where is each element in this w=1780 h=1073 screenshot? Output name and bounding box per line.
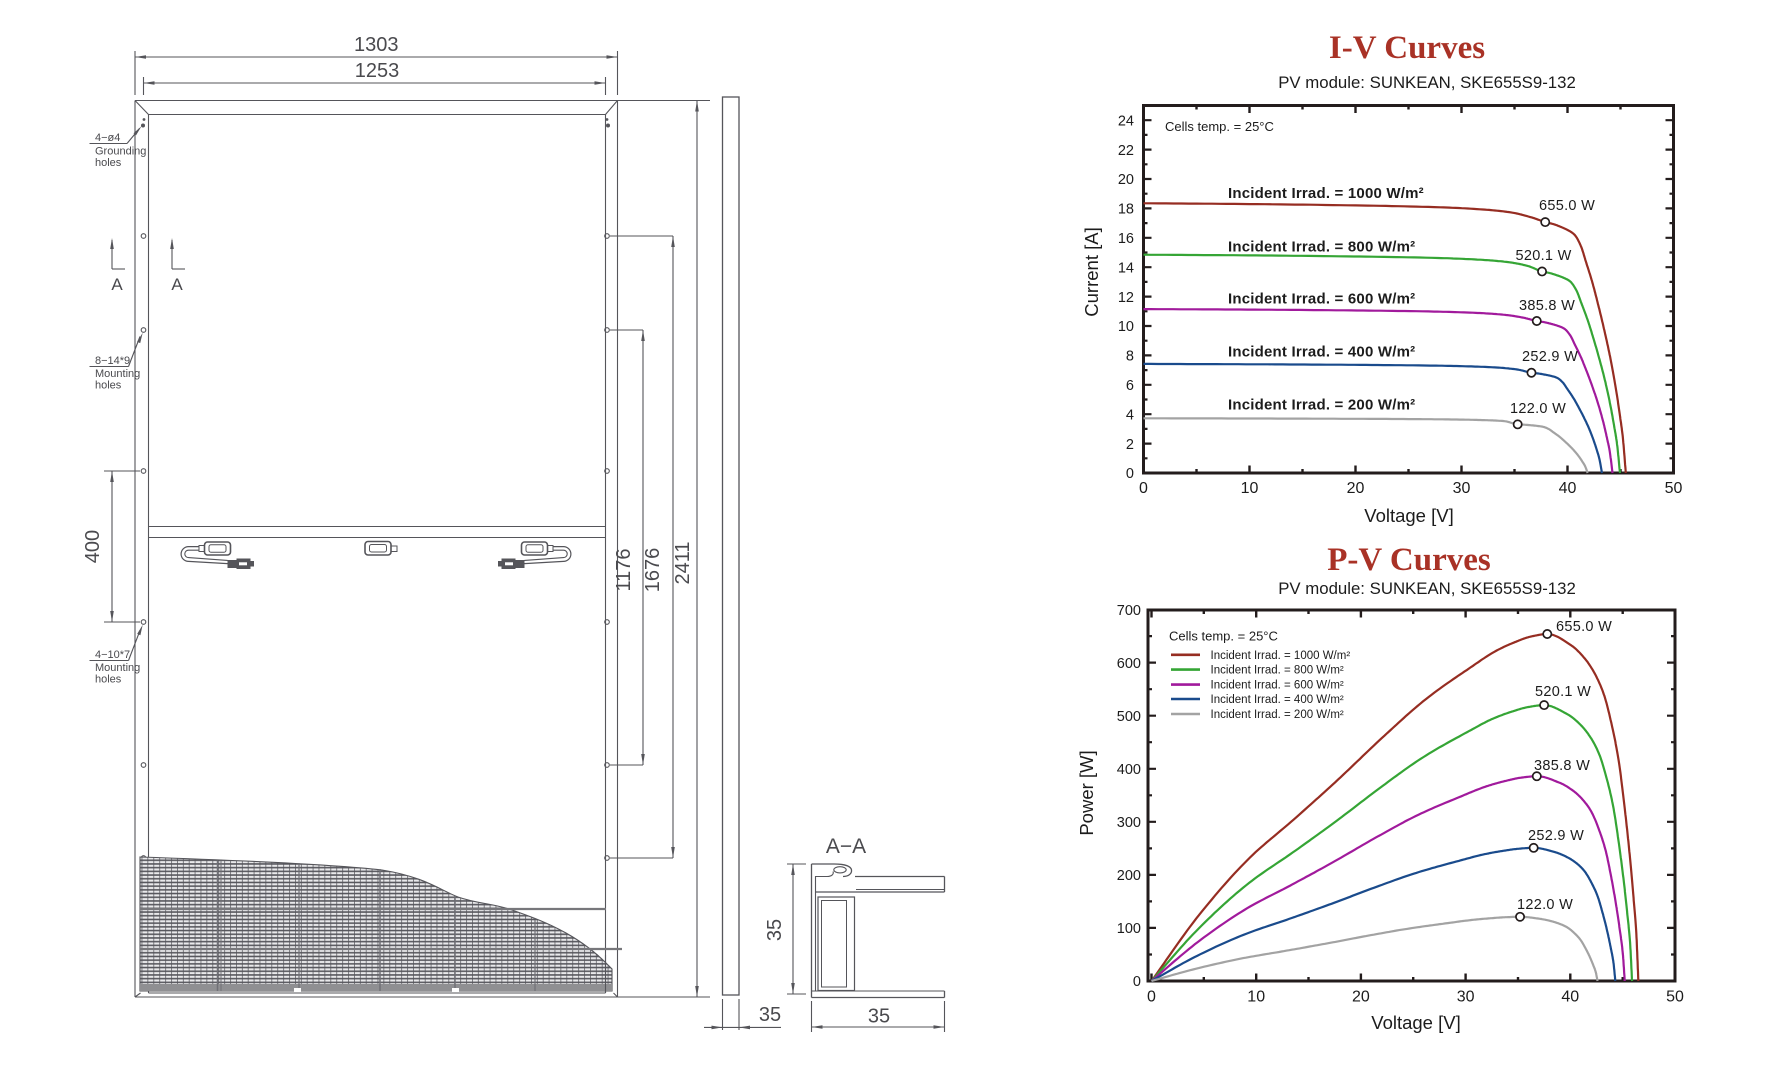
svg-text:40: 40 — [1559, 480, 1577, 497]
svg-text:700: 700 — [1117, 603, 1141, 619]
svg-text:520.1 W: 520.1 W — [1516, 248, 1572, 264]
svg-text:50: 50 — [1666, 989, 1684, 1006]
svg-text:PV module: SUNKEAN, SKE655S9-1: PV module: SUNKEAN, SKE655S9-132 — [1278, 579, 1576, 598]
svg-text:600: 600 — [1117, 656, 1141, 672]
svg-text:40: 40 — [1561, 989, 1579, 1006]
svg-text:20: 20 — [1347, 480, 1365, 497]
svg-text:400: 400 — [1117, 762, 1141, 778]
svg-text:4−10*7: 4−10*7 — [95, 649, 130, 661]
svg-text:P-V Curves: P-V Curves — [1327, 542, 1491, 578]
svg-text:0: 0 — [1133, 974, 1141, 990]
svg-text:35: 35 — [764, 919, 786, 941]
svg-text:35: 35 — [868, 1006, 890, 1028]
svg-text:385.8 W: 385.8 W — [1534, 758, 1590, 774]
svg-text:35: 35 — [759, 1004, 781, 1026]
svg-text:10: 10 — [1118, 319, 1134, 335]
svg-text:Cells temp. = 25°C: Cells temp. = 25°C — [1165, 119, 1274, 134]
svg-text:1676: 1676 — [642, 548, 664, 593]
svg-text:Grounding: Grounding — [95, 146, 146, 158]
svg-text:10: 10 — [1241, 480, 1259, 497]
svg-text:10: 10 — [1247, 989, 1265, 1006]
svg-text:30: 30 — [1457, 989, 1475, 1006]
svg-text:20: 20 — [1118, 172, 1134, 188]
svg-text:Incident Irrad. = 200 W/m²: Incident Irrad. = 200 W/m² — [1211, 709, 1344, 721]
svg-text:122.0 W: 122.0 W — [1510, 401, 1566, 417]
svg-text:Incident Irrad. = 1000 W/m²: Incident Irrad. = 1000 W/m² — [1228, 185, 1424, 202]
svg-text:Incident Irrad. = 800 W/m²: Incident Irrad. = 800 W/m² — [1228, 239, 1415, 256]
svg-text:252.9 W: 252.9 W — [1528, 828, 1584, 844]
svg-text:16: 16 — [1118, 231, 1134, 247]
svg-text:500: 500 — [1117, 709, 1141, 725]
svg-text:PV module: SUNKEAN, SKE655S9-1: PV module: SUNKEAN, SKE655S9-132 — [1278, 73, 1576, 92]
svg-text:holes: holes — [95, 380, 122, 392]
svg-text:Incident Irrad. = 1000 W/m²: Incident Irrad. = 1000 W/m² — [1211, 650, 1351, 662]
svg-text:Mounting: Mounting — [95, 662, 140, 674]
svg-text:Incident Irrad. = 400 W/m²: Incident Irrad. = 400 W/m² — [1228, 344, 1415, 361]
svg-text:300: 300 — [1117, 815, 1141, 831]
svg-text:20: 20 — [1352, 989, 1370, 1006]
svg-text:50: 50 — [1665, 480, 1683, 497]
svg-text:I-V Curves: I-V Curves — [1329, 30, 1485, 66]
svg-text:6: 6 — [1126, 378, 1134, 394]
svg-text:200: 200 — [1117, 868, 1141, 884]
svg-text:Power [W]: Power [W] — [1076, 750, 1097, 835]
svg-text:Current [A]: Current [A] — [1081, 227, 1102, 316]
svg-text:18: 18 — [1118, 202, 1134, 218]
svg-text:Incident Irrad. = 800 W/m²: Incident Irrad. = 800 W/m² — [1211, 665, 1344, 677]
svg-text:Mounting: Mounting — [95, 368, 140, 380]
svg-text:252.9 W: 252.9 W — [1522, 349, 1578, 365]
svg-text:520.1 W: 520.1 W — [1535, 684, 1591, 700]
svg-text:Incident Irrad. = 600 W/m²: Incident Irrad. = 600 W/m² — [1211, 680, 1344, 692]
svg-text:30: 30 — [1453, 480, 1471, 497]
svg-text:385.8 W: 385.8 W — [1519, 298, 1575, 314]
svg-text:22: 22 — [1118, 143, 1134, 159]
svg-text:8: 8 — [1126, 349, 1134, 365]
svg-text:holes: holes — [95, 674, 122, 686]
svg-text:A−A: A−A — [826, 835, 866, 858]
svg-text:0: 0 — [1139, 480, 1148, 497]
svg-text:100: 100 — [1117, 921, 1141, 937]
svg-text:holes: holes — [95, 157, 122, 169]
svg-text:Incident Irrad. = 200 W/m²: Incident Irrad. = 200 W/m² — [1228, 397, 1415, 414]
svg-text:Cells temp. = 25°C: Cells temp. = 25°C — [1169, 629, 1278, 644]
svg-text:14: 14 — [1118, 260, 1134, 276]
svg-text:1253: 1253 — [355, 60, 400, 82]
svg-text:Voltage [V]: Voltage [V] — [1371, 1012, 1460, 1033]
svg-text:0: 0 — [1126, 466, 1134, 482]
svg-text:0: 0 — [1147, 989, 1156, 1006]
svg-text:4−ø4: 4−ø4 — [95, 132, 120, 144]
svg-text:A: A — [171, 275, 183, 294]
svg-text:1303: 1303 — [354, 34, 399, 56]
svg-text:Incident Irrad. = 400 W/m²: Incident Irrad. = 400 W/m² — [1211, 694, 1344, 706]
svg-text:1176: 1176 — [613, 548, 635, 591]
svg-text:400: 400 — [82, 530, 104, 563]
svg-text:Voltage [V]: Voltage [V] — [1364, 505, 1453, 526]
svg-text:Incident Irrad. = 600 W/m²: Incident Irrad. = 600 W/m² — [1228, 291, 1415, 308]
svg-text:12: 12 — [1118, 290, 1134, 306]
svg-text:24: 24 — [1118, 113, 1134, 129]
svg-text:122.0 W: 122.0 W — [1517, 897, 1573, 913]
svg-text:655.0 W: 655.0 W — [1556, 619, 1612, 635]
svg-text:2: 2 — [1126, 437, 1134, 453]
svg-text:8−14*9: 8−14*9 — [95, 355, 130, 367]
svg-text:A: A — [111, 275, 123, 294]
svg-text:2411: 2411 — [672, 541, 694, 584]
svg-text:655.0 W: 655.0 W — [1539, 198, 1595, 214]
svg-text:4: 4 — [1126, 407, 1134, 423]
